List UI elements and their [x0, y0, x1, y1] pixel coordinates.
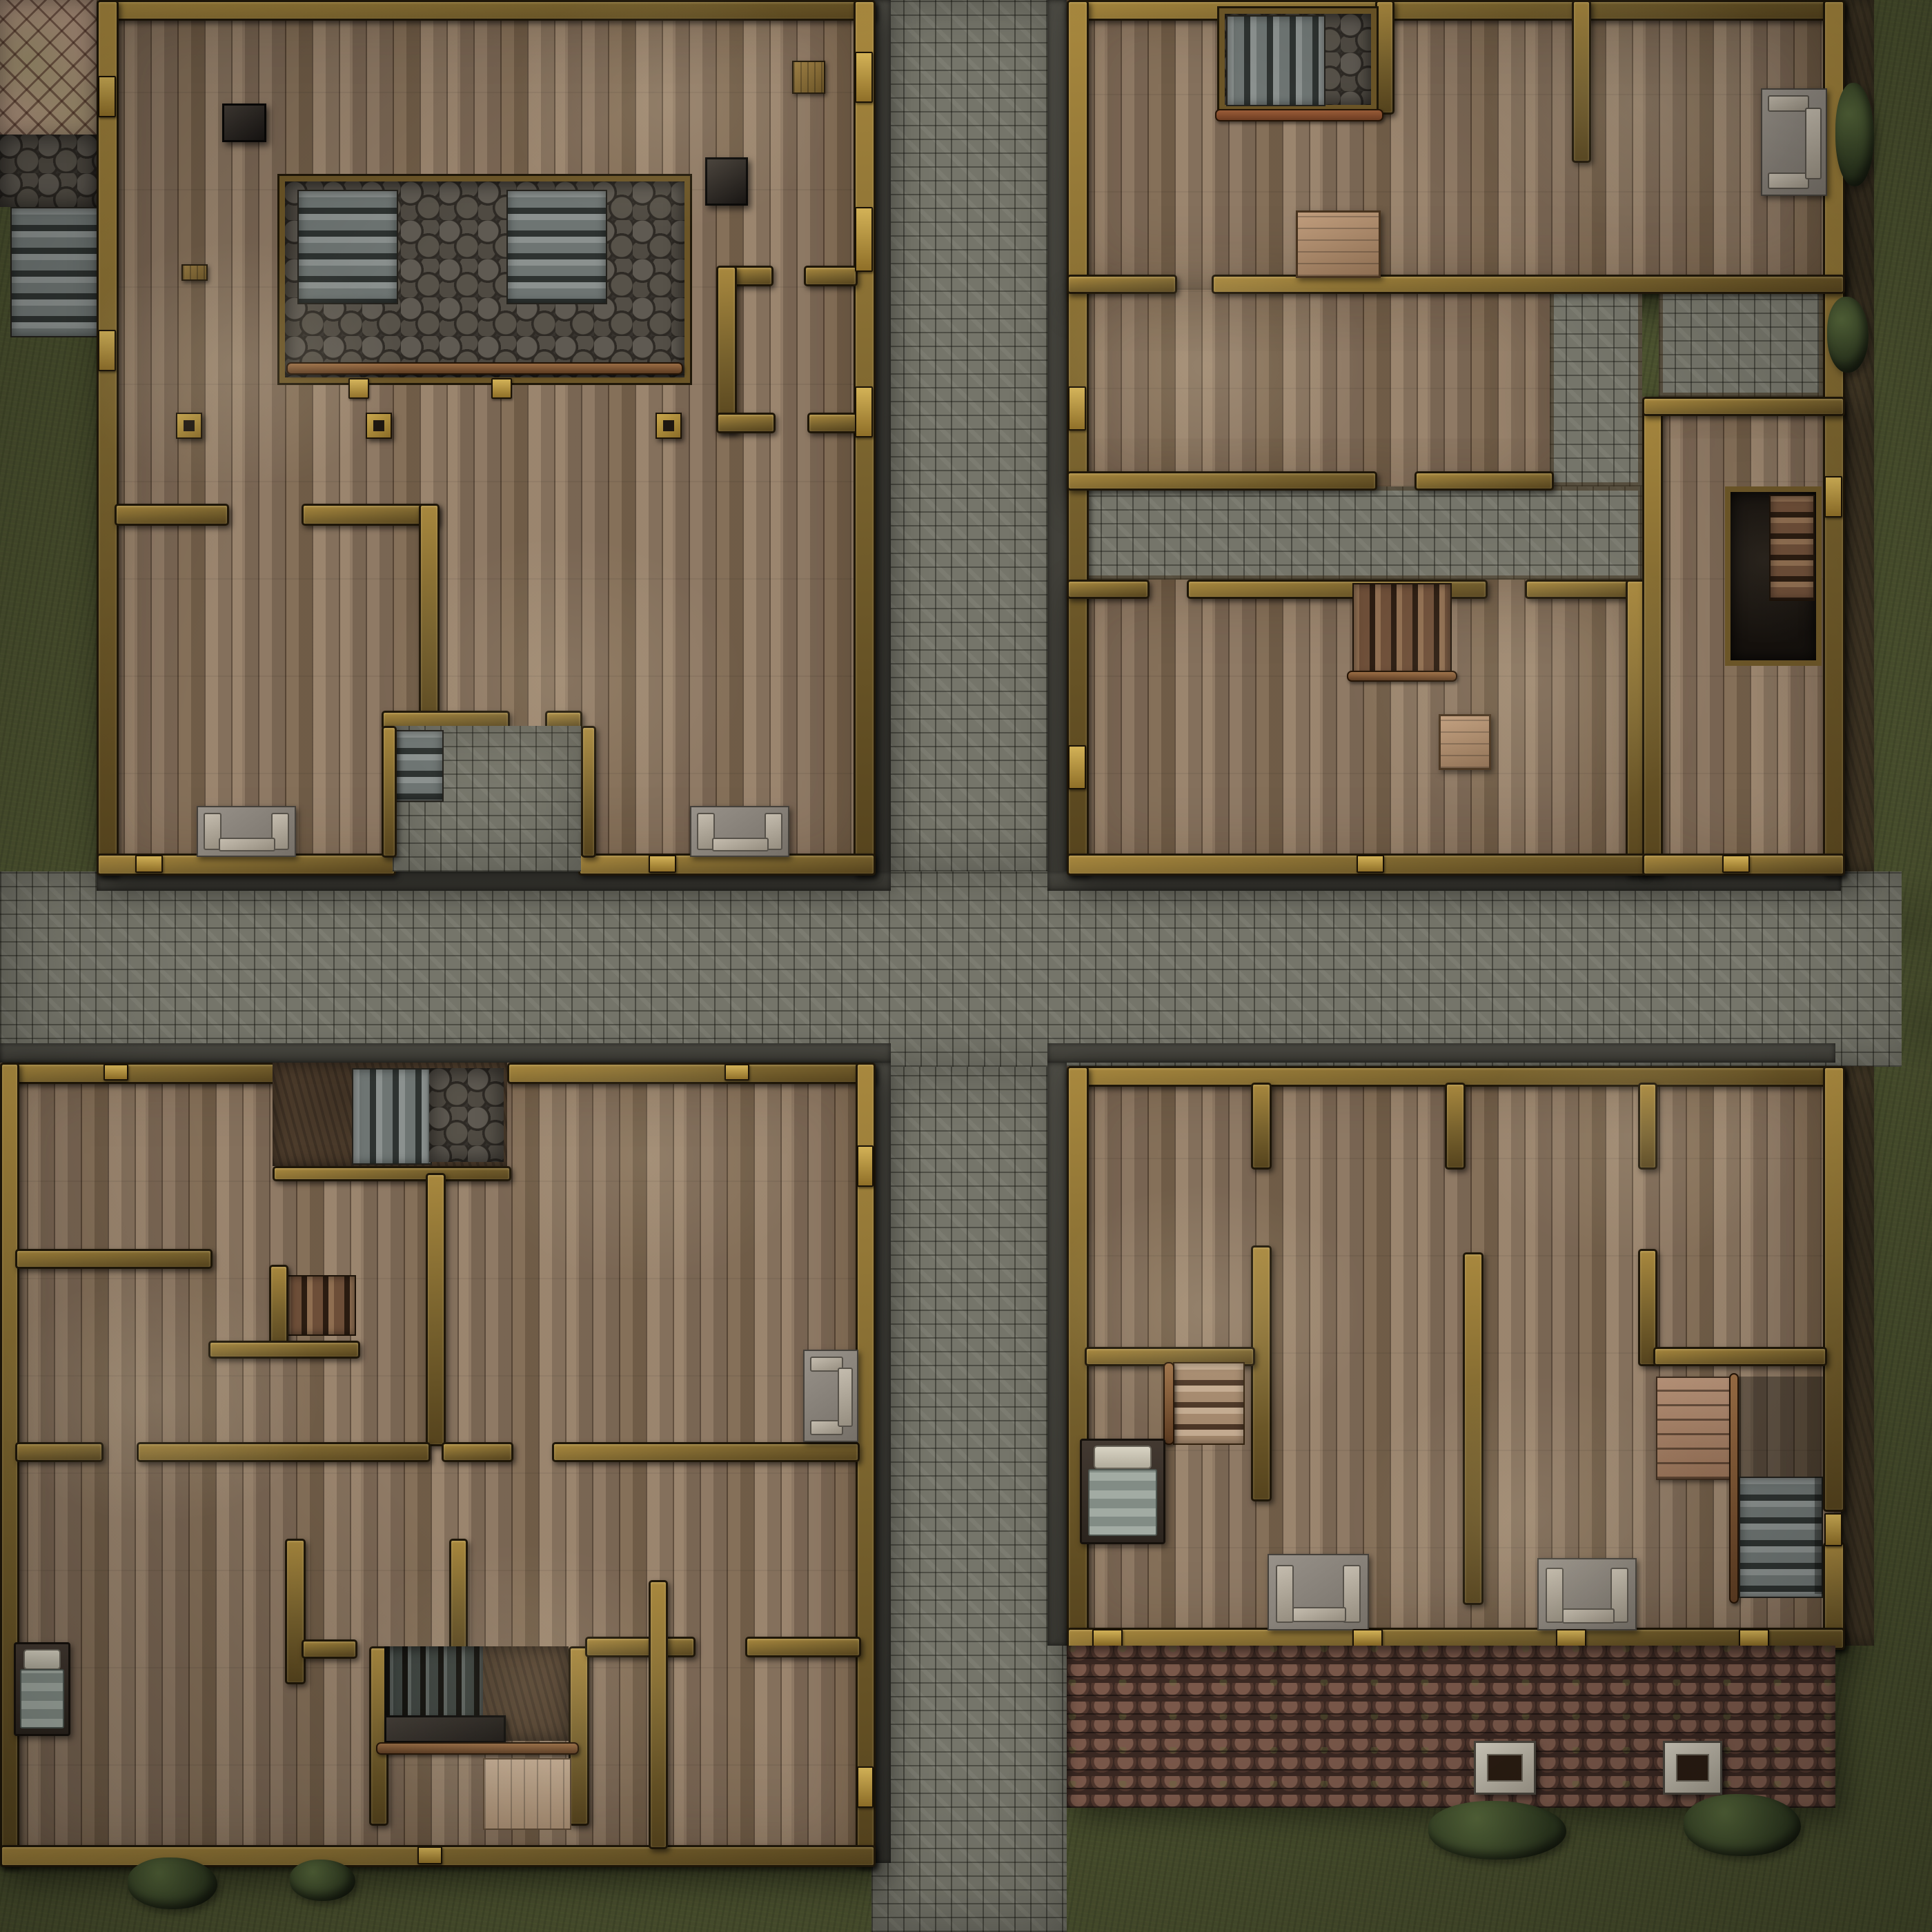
dirt-edge: [1841, 1066, 1874, 1646]
interior-wall: [569, 1646, 589, 1826]
interior-stairs-down: [1352, 583, 1452, 677]
stair-rail: [1729, 1373, 1739, 1604]
wooden-table: [1296, 210, 1381, 278]
fire-grate-pit: [384, 1646, 569, 1741]
wooden-staircase: [284, 1275, 356, 1336]
chimney-flue: [1676, 1754, 1709, 1782]
north-wall: [1067, 0, 1845, 21]
bush: [290, 1860, 355, 1901]
cellar-stairwell: [1725, 486, 1822, 666]
floor-mid-room: [1067, 290, 1550, 486]
south-street: [871, 1067, 1067, 1932]
door: [1722, 855, 1750, 873]
basement-entry-pit: [273, 1063, 507, 1166]
door: [855, 386, 873, 437]
wall-stud: [348, 378, 369, 399]
east-wing-north-wall: [1642, 397, 1845, 416]
fireplace-hearth: [690, 806, 789, 857]
interior-wall: [585, 1637, 696, 1657]
interior-wall: [302, 1639, 357, 1659]
northwest-hall: [97, 0, 871, 871]
interior-wall: [1653, 1347, 1827, 1366]
northeast-house: [1067, 0, 1841, 871]
crate: [792, 61, 825, 94]
pillow: [23, 1649, 61, 1670]
interior-wall: [1375, 0, 1394, 115]
interior-wall: [269, 1265, 288, 1350]
door: [1824, 1513, 1842, 1546]
interior-wall: [1638, 1083, 1657, 1170]
door: [1068, 745, 1086, 789]
cellar-stairs: [1226, 15, 1325, 106]
floor-top-section: [1067, 0, 1841, 290]
interior-wall: [804, 266, 858, 286]
crate: [181, 264, 208, 281]
fireplace-hearth: [1761, 88, 1827, 196]
stool: [1439, 714, 1491, 770]
bed: [1080, 1439, 1165, 1544]
interior-wall: [15, 1249, 213, 1269]
door: [1824, 476, 1842, 517]
curb: [1047, 1043, 1835, 1063]
hearth-stone: [712, 838, 769, 851]
curb: [1047, 1063, 1067, 1646]
door: [1739, 1629, 1769, 1647]
door: [857, 1766, 874, 1808]
guard-rail: [286, 362, 683, 375]
hearth-stone: [1562, 1608, 1615, 1624]
pit-railing: [1215, 109, 1383, 121]
fireplace-hearth: [1268, 1554, 1369, 1630]
hexstone-patch: [0, 135, 100, 207]
interior-wall: [745, 1637, 861, 1657]
pit-rail: [376, 1742, 579, 1755]
stone-courtyard-arm: [1550, 290, 1642, 486]
battlemap-canvas: [0, 0, 1932, 1932]
west-wall: [0, 1063, 19, 1867]
interior-wall: [442, 1442, 513, 1462]
charred-logs: [384, 1715, 506, 1743]
fireplace-hearth: [197, 806, 296, 857]
entry-stairs: [352, 1068, 432, 1165]
interior-wall: [426, 1173, 446, 1446]
bush: [128, 1857, 217, 1909]
interior-wall: [419, 504, 440, 736]
stair-rail: [1163, 1362, 1174, 1445]
brazier: [222, 103, 266, 142]
bed: [14, 1642, 70, 1736]
interior-wall: [807, 413, 858, 433]
southwest-house: [0, 1063, 871, 1863]
interior-wall: [1572, 0, 1591, 163]
stone-steps-down: [1739, 1477, 1823, 1598]
hearth-stone: [1768, 95, 1809, 112]
alcove-jamb: [382, 726, 397, 858]
hearth-stone: [1546, 1568, 1564, 1623]
interior-wall: [285, 1539, 306, 1684]
bush: [1827, 297, 1869, 373]
pit-edge: [1815, 1377, 1823, 1594]
door: [1556, 1629, 1586, 1647]
curb: [1047, 0, 1067, 891]
interior-wall: [716, 413, 776, 433]
pit-landing: [429, 1068, 504, 1162]
blanket: [1088, 1469, 1156, 1536]
bush: [1684, 1794, 1801, 1856]
brazier: [705, 157, 748, 206]
interior-wall: [649, 1580, 668, 1849]
stone-courtyard: [1085, 486, 1642, 580]
door: [417, 1846, 442, 1864]
hearth-stone: [1768, 172, 1809, 189]
stone-courtyard-east: [1659, 290, 1823, 397]
interior-wall: [1251, 1083, 1272, 1170]
chimney-flue: [1487, 1754, 1523, 1782]
east-wall: [1823, 1066, 1845, 1512]
courtyard-stairs-left: [297, 190, 398, 304]
east-wall: [854, 0, 876, 876]
exterior-stairs-west: [10, 207, 103, 337]
stair-rail: [1347, 671, 1457, 682]
north-wall: [507, 1063, 876, 1084]
shingle-patch: [0, 0, 100, 135]
door: [98, 76, 116, 117]
interior-wall: [716, 266, 737, 433]
storage-shelf: [1656, 1377, 1731, 1480]
bush: [1428, 1801, 1566, 1860]
wooden-post: [655, 413, 682, 439]
north-wall: [0, 1063, 277, 1084]
west-wall: [1067, 0, 1089, 876]
cross-street: [0, 871, 1932, 1067]
fireplace-hearth: [1537, 1558, 1637, 1630]
interior-wall: [1463, 1252, 1483, 1605]
interior-wall: [552, 1442, 860, 1462]
hearth-stone: [219, 838, 275, 851]
alcove-steps: [393, 730, 444, 802]
door: [855, 52, 873, 103]
curb: [0, 1043, 891, 1063]
door: [855, 207, 873, 272]
hearth-stone: [1805, 108, 1822, 179]
interior-wall: [137, 1442, 431, 1462]
door: [135, 855, 163, 873]
door: [103, 1064, 128, 1081]
door: [724, 1064, 749, 1081]
interior-wall: [15, 1442, 103, 1462]
blanket: [20, 1669, 64, 1728]
tiled-roof: [1067, 1646, 1835, 1808]
chimney: [1474, 1741, 1536, 1795]
interior-wall: [1067, 471, 1377, 491]
southeast-house: [1067, 1066, 1841, 1646]
door: [1092, 1629, 1123, 1647]
pillow: [1094, 1446, 1152, 1468]
east-wing-west-wall: [1642, 397, 1663, 876]
alcove-jamb: [581, 726, 596, 858]
wall-stud: [491, 378, 512, 399]
north-street: [871, 0, 1067, 871]
wooden-staircase: [1173, 1362, 1245, 1445]
hearth-stone: [1292, 1607, 1346, 1622]
door: [1357, 855, 1384, 873]
chimney: [1663, 1741, 1722, 1795]
west-wall: [97, 0, 119, 876]
interior-wall: [1067, 580, 1150, 599]
interior-wall: [1251, 1245, 1272, 1501]
north-wall: [97, 0, 876, 21]
door: [1068, 386, 1086, 431]
hearth-stone: [838, 1368, 853, 1427]
stone-courtyard-pit: [279, 176, 690, 383]
door: [649, 855, 676, 873]
stair-landing-shadow: [1739, 1377, 1815, 1477]
wooden-post: [176, 413, 202, 439]
pit-wall: [273, 1166, 511, 1181]
interior-wall: [1445, 1083, 1466, 1170]
interior-wall: [115, 504, 229, 526]
fireplace-hearth: [803, 1350, 858, 1442]
interior-wall: [1414, 471, 1554, 491]
wooden-cellar-stairs: [1769, 495, 1815, 601]
section-wall: [1067, 275, 1177, 294]
interior-wall: [449, 1539, 468, 1659]
cellar-stair-pit: [1219, 8, 1377, 110]
interior-wall: [208, 1341, 360, 1359]
grass-sliver-east: [1902, 871, 1932, 1067]
door: [98, 330, 116, 371]
wood-pallet: [483, 1758, 571, 1830]
bush: [1835, 83, 1874, 186]
door: [1352, 1629, 1383, 1647]
door: [857, 1145, 874, 1187]
courtyard-stairs-right: [506, 190, 607, 304]
wooden-post: [366, 413, 392, 439]
hearth-stone: [1276, 1565, 1294, 1623]
